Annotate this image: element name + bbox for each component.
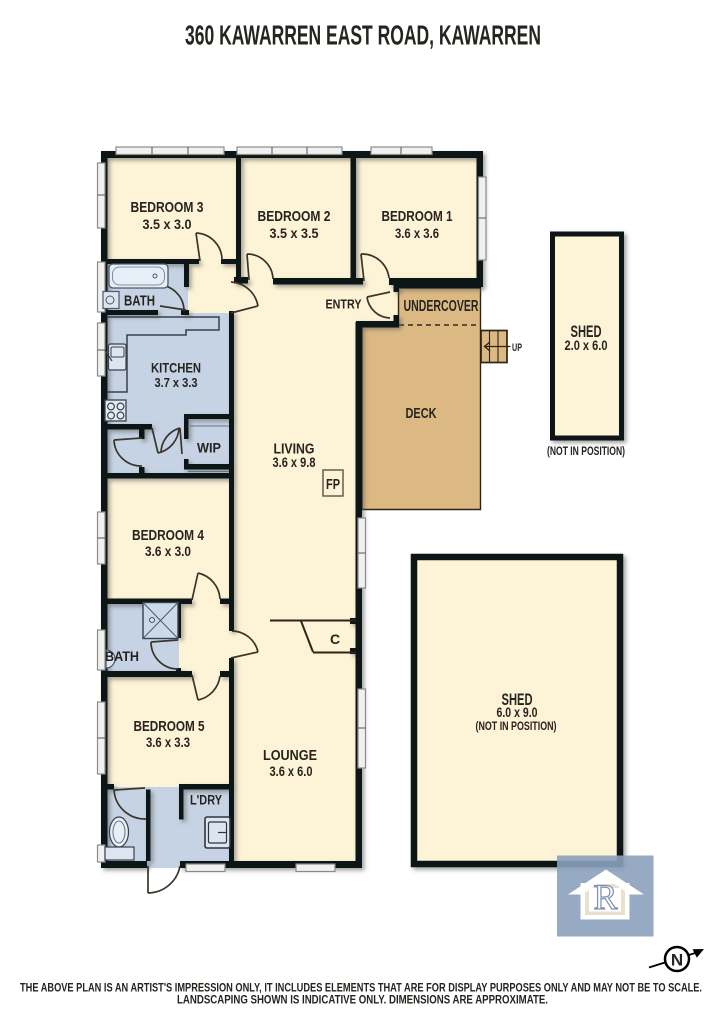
- svg-text:R: R: [593, 877, 617, 917]
- svg-text:UP: UP: [512, 342, 522, 354]
- svg-text:DECK: DECK: [406, 406, 437, 422]
- svg-text:2.0 x 6.0: 2.0 x 6.0: [565, 338, 608, 353]
- svg-text:(NOT IN POSITION): (NOT IN POSITION): [547, 444, 625, 458]
- svg-text:BATH: BATH: [105, 649, 139, 664]
- svg-text:3.6 x 6.0: 3.6 x 6.0: [270, 764, 313, 779]
- svg-text:BEDROOM 3: BEDROOM 3: [131, 199, 204, 216]
- svg-text:6.0 x 9.0: 6.0 x 9.0: [497, 705, 538, 720]
- svg-text:BEDROOM 5: BEDROOM 5: [134, 718, 205, 735]
- svg-text:3.6 x 3.0: 3.6 x 3.0: [145, 543, 191, 559]
- svg-text:BEDROOM 1: BEDROOM 1: [382, 208, 453, 225]
- svg-text:ENTRY: ENTRY: [326, 297, 362, 312]
- svg-text:360 KAWARREN EAST ROAD, KAWARR: 360 KAWARREN EAST ROAD, KAWARREN: [185, 20, 541, 51]
- svg-text:LANDSCAPING SHOWN IS INDICATIV: LANDSCAPING SHOWN IS INDICATIVE ONLY. DI…: [177, 995, 548, 1007]
- svg-text:LOUNGE: LOUNGE: [263, 748, 317, 764]
- svg-text:N: N: [671, 951, 683, 970]
- svg-text:THE ABOVE PLAN IS AN ARTIST'S: THE ABOVE PLAN IS AN ARTIST'S IMPRESSION…: [20, 983, 702, 995]
- svg-text:3.5 x 3.5: 3.5 x 3.5: [270, 225, 319, 241]
- svg-text:3.6 x 3.3: 3.6 x 3.3: [146, 734, 190, 750]
- svg-text:3.6 x 9.8: 3.6 x 9.8: [273, 455, 316, 470]
- svg-text:3.5 x 3.0: 3.5 x 3.0: [143, 216, 192, 232]
- svg-text:(NOT IN POSITION): (NOT IN POSITION): [476, 719, 557, 733]
- svg-text:FP: FP: [326, 476, 340, 493]
- svg-text:BATH: BATH: [124, 293, 155, 310]
- svg-text:BEDROOM 4: BEDROOM 4: [132, 527, 205, 544]
- svg-text:3.6 x 3.6: 3.6 x 3.6: [395, 225, 439, 241]
- svg-text:WIP: WIP: [197, 440, 221, 456]
- svg-text:L'DRY: L'DRY: [190, 793, 222, 808]
- svg-text:C: C: [330, 631, 340, 647]
- svg-text:BEDROOM 2: BEDROOM 2: [258, 208, 331, 225]
- svg-text:KITCHEN: KITCHEN: [151, 361, 201, 376]
- svg-text:UNDERCOVER: UNDERCOVER: [404, 298, 479, 315]
- svg-text:3.7 x 3.3: 3.7 x 3.3: [155, 375, 198, 390]
